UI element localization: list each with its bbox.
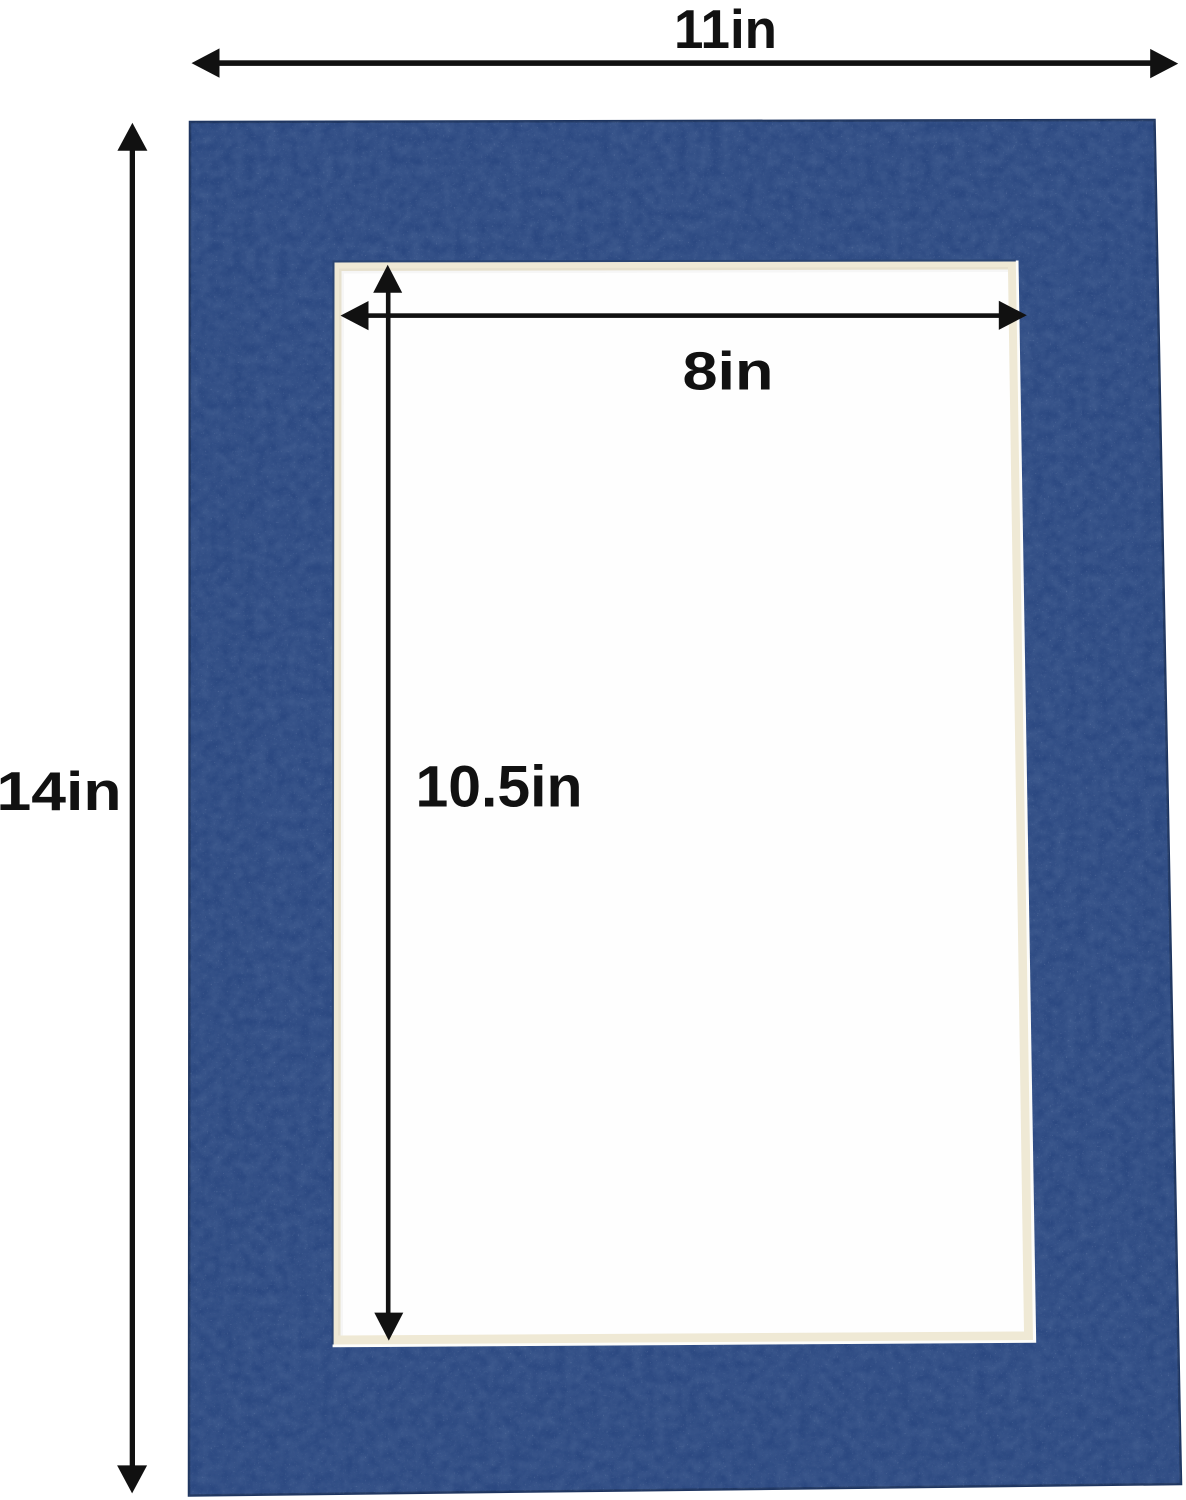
svg-text:11in: 11in: [674, 0, 777, 60]
svg-text:10.5in: 10.5in: [416, 755, 583, 820]
svg-text:14in: 14in: [0, 760, 122, 822]
svg-text:8in: 8in: [683, 342, 774, 402]
